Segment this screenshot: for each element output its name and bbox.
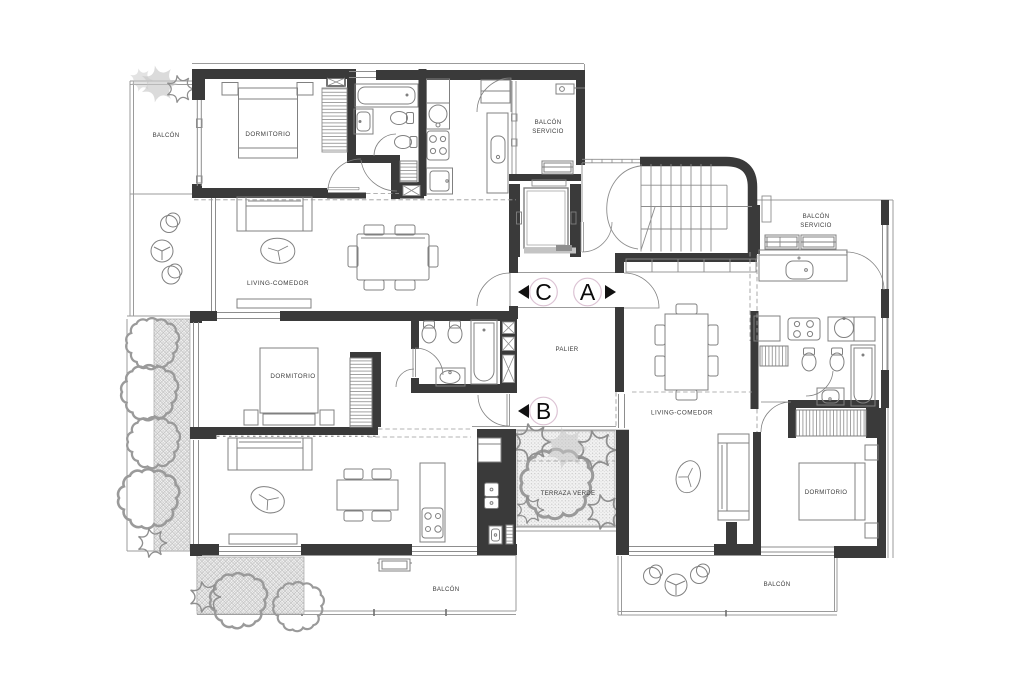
svg-text:BALCÓN: BALCÓN [433, 586, 460, 593]
svg-text:PALIER: PALIER [555, 346, 578, 353]
svg-text:B: B [536, 398, 551, 424]
svg-text:C: C [535, 279, 552, 305]
svg-text:BALCÓN: BALCÓN [535, 119, 562, 126]
svg-text:DORMITORIO: DORMITORIO [270, 373, 315, 380]
svg-text:BALCÓN: BALCÓN [803, 213, 830, 220]
svg-text:DORMITORIO: DORMITORIO [805, 489, 848, 496]
svg-text:LIVING-COMEDOR: LIVING-COMEDOR [247, 280, 309, 287]
svg-text:TERRAZA VERDE: TERRAZA VERDE [541, 490, 596, 497]
svg-text:SERVICIO: SERVICIO [532, 128, 563, 135]
svg-text:A: A [580, 279, 596, 305]
svg-text:DORMITORIO: DORMITORIO [245, 131, 290, 138]
svg-text:BALCÓN: BALCÓN [764, 581, 791, 588]
svg-text:SERVICIO: SERVICIO [800, 222, 831, 229]
svg-text:BALCÓN: BALCÓN [153, 132, 180, 139]
svg-text:LIVING-COMEDOR: LIVING-COMEDOR [651, 410, 713, 417]
